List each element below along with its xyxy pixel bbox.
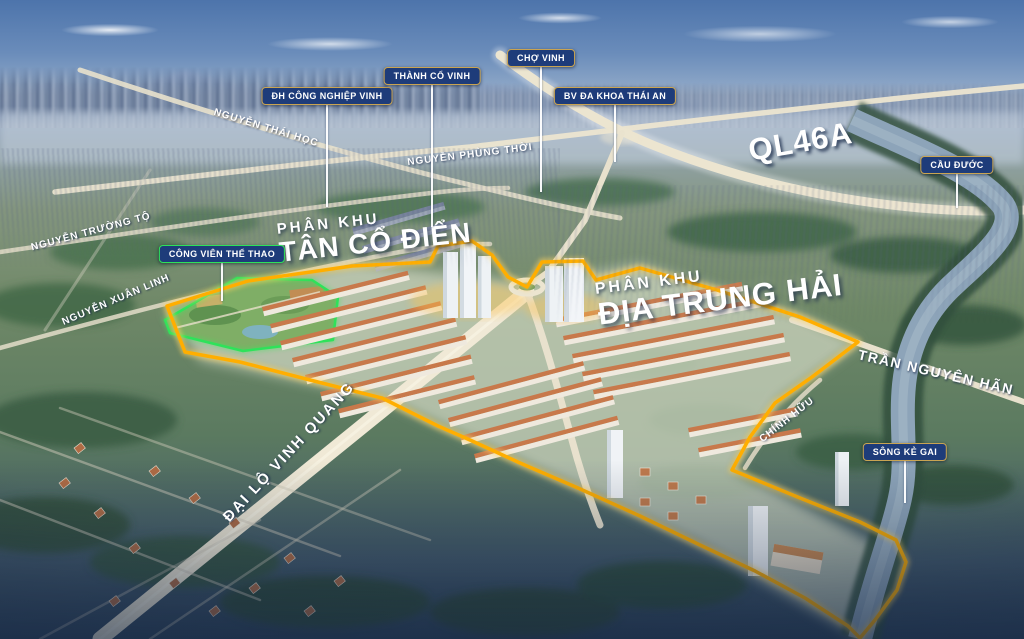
landmark-label: SÔNG KẺ GAI — [863, 443, 947, 461]
landmark-song-ke-gai: SÔNG KẺ GAI — [905, 442, 989, 503]
landmark-label: ĐH CÔNG NGHIỆP VINH — [262, 87, 393, 105]
landmark-cong-vien-the-thao: CÔNG VIÊN THỂ THAO — [222, 244, 348, 301]
landmark-bv-da-khoa-thai-an: BV ĐA KHOA THÁI AN — [615, 86, 737, 162]
landmark-thanh-co-vinh: THÀNH CỔ VINH — [432, 66, 529, 227]
label-pointer — [540, 67, 542, 192]
label-pointer — [614, 105, 616, 162]
label-pointer — [431, 85, 433, 227]
landmark-cho-vinh: CHỢ VINH — [541, 48, 609, 192]
landmark-label: CẦU ĐƯỚC — [920, 156, 993, 174]
landmark-cau-duoc: CẦU ĐƯỚC — [957, 155, 1024, 208]
landmark-label: CHỢ VINH — [507, 49, 575, 67]
label-pointer — [221, 263, 223, 301]
label-pointer — [956, 174, 958, 208]
landmark-label: THÀNH CỔ VINH — [384, 67, 481, 85]
landmark-label: BV ĐA KHOA THÁI AN — [554, 87, 676, 105]
label-pointer — [326, 105, 328, 207]
landmark-label: CÔNG VIÊN THỂ THAO — [159, 245, 285, 263]
masterplan-aerial-map: NGUYỄN THÁI HỌC NGUYỄN PHÙNG THỜI NGUYỄN… — [0, 0, 1024, 639]
label-pointer — [904, 461, 906, 503]
